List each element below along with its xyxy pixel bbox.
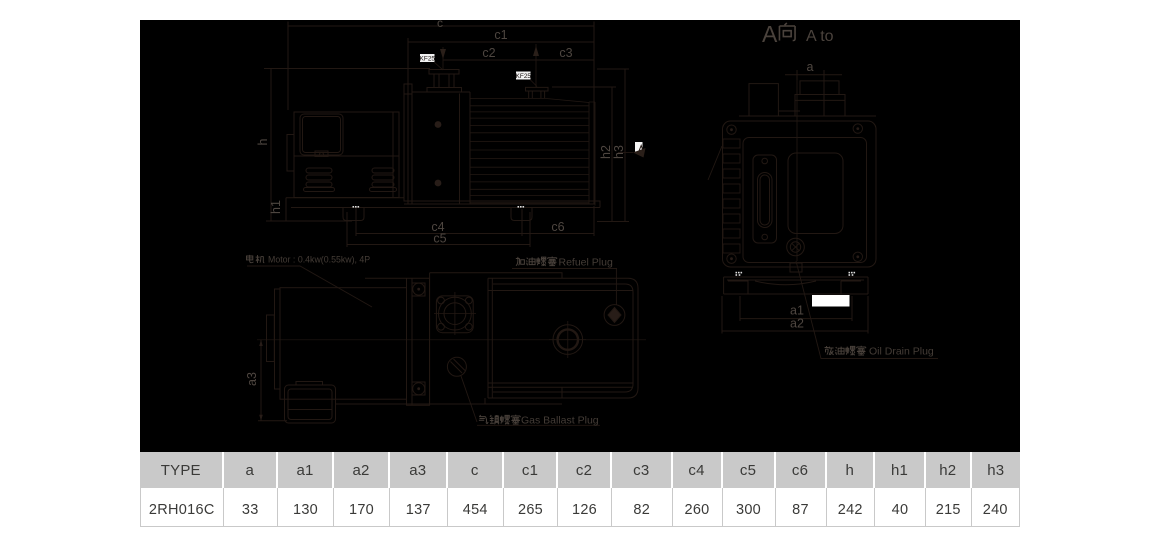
svg-text:c3: c3 bbox=[559, 46, 572, 60]
svg-text:Oil Drain Plug: Oil Drain Plug bbox=[869, 346, 934, 358]
svg-text:c2: c2 bbox=[482, 46, 495, 60]
svg-text:c6: c6 bbox=[551, 220, 564, 234]
svg-text:KF25: KF25 bbox=[420, 56, 436, 63]
svg-text:c1: c1 bbox=[494, 28, 507, 42]
svg-text:a2: a2 bbox=[790, 317, 804, 331]
svg-text:KF25: KF25 bbox=[516, 73, 532, 80]
svg-text:h3: h3 bbox=[612, 145, 626, 159]
svg-text:h: h bbox=[256, 138, 270, 145]
svg-text:A to: A to bbox=[806, 28, 834, 45]
svg-text:a: a bbox=[807, 60, 814, 74]
svg-text:A: A bbox=[762, 21, 778, 47]
svg-text:a3: a3 bbox=[245, 372, 259, 386]
svg-text:Gas Ballast Plug: Gas Ballast Plug bbox=[521, 415, 599, 427]
svg-text:h2: h2 bbox=[599, 145, 613, 159]
svg-text:c5: c5 bbox=[433, 232, 446, 246]
svg-text:c: c bbox=[437, 20, 443, 30]
svg-text:Motor : 0.4kw(0.55kw), 4P: Motor : 0.4kw(0.55kw), 4P bbox=[268, 255, 370, 265]
svg-text:a1: a1 bbox=[790, 304, 804, 318]
svg-text:h1: h1 bbox=[269, 200, 283, 214]
svg-text:Refuel Plug: Refuel Plug bbox=[559, 256, 613, 268]
